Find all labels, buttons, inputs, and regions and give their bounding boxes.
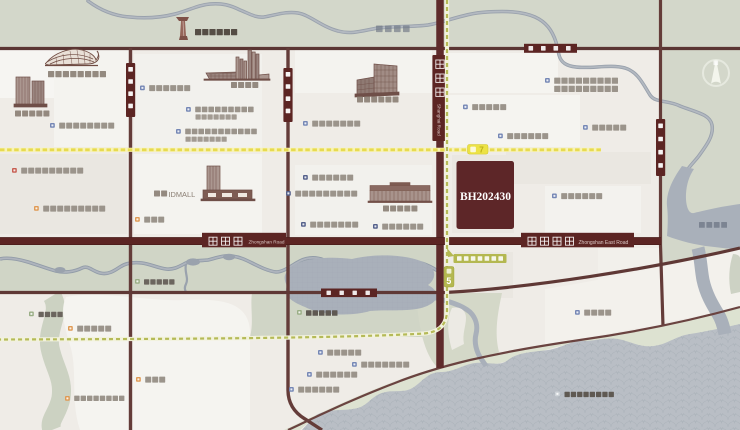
- svg-text:5: 5: [446, 276, 451, 286]
- svg-text:Zhongshan East Road: Zhongshan East Road: [579, 240, 629, 246]
- svg-text:Shanghai Road: Shanghai Road: [436, 104, 441, 136]
- svg-text:BH202430: BH202430: [460, 191, 511, 203]
- svg-text:7: 7: [479, 146, 484, 155]
- svg-text:Zhongshan Road: Zhongshan Road: [249, 240, 285, 245]
- svg-text:IDMALL: IDMALL: [169, 190, 196, 199]
